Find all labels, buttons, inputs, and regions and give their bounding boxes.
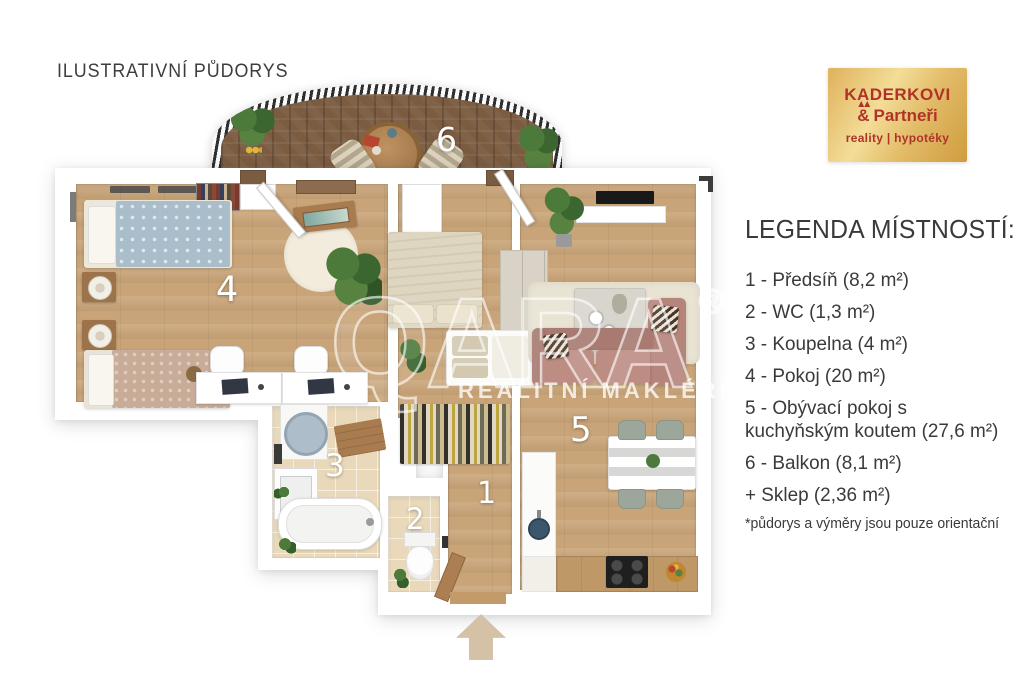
dining-chair xyxy=(618,420,646,440)
dining-chair xyxy=(656,489,684,509)
window-mark xyxy=(158,186,198,193)
plant-pot xyxy=(556,234,572,247)
dining-chair xyxy=(656,420,684,440)
room-number-bath: 3 xyxy=(325,448,345,484)
faucet xyxy=(537,510,541,518)
laptop xyxy=(308,378,335,395)
plant xyxy=(542,184,586,238)
mirror xyxy=(302,207,349,227)
room-number-balcony: 6 xyxy=(436,120,457,159)
plant xyxy=(400,336,426,374)
kitchen-counter xyxy=(522,452,556,560)
faucet xyxy=(366,518,374,526)
window-mark xyxy=(70,192,76,222)
cushion xyxy=(452,358,488,378)
mouse xyxy=(344,384,350,390)
room-number-hall: 1 xyxy=(477,476,496,511)
cushion xyxy=(452,336,488,356)
pillow xyxy=(88,354,114,406)
window-mark xyxy=(110,186,150,193)
sofa-pillow xyxy=(651,305,680,334)
wall-corner-mark xyxy=(708,176,713,192)
decor-bowl xyxy=(588,310,604,326)
table-plant xyxy=(646,454,660,468)
room-number-living: 5 xyxy=(570,410,592,450)
room-number-wc: 2 xyxy=(406,502,424,536)
dining-chair xyxy=(618,489,646,509)
tv xyxy=(596,191,654,204)
striped-runner-rug xyxy=(400,404,510,464)
kitchen-counter xyxy=(522,556,560,592)
plant xyxy=(326,244,382,306)
bathtub-basin xyxy=(286,505,374,543)
plant xyxy=(274,484,294,500)
mouse xyxy=(258,384,264,390)
lamp xyxy=(88,324,112,348)
duvet xyxy=(116,201,230,267)
pillow xyxy=(88,206,116,264)
kitchen-sink xyxy=(528,518,550,540)
plant xyxy=(392,566,410,588)
stove-cooktop xyxy=(606,556,648,588)
toilet-paper-holder xyxy=(442,536,448,548)
cushion xyxy=(492,336,528,378)
sofa-seat xyxy=(596,350,650,384)
laptop xyxy=(222,378,249,395)
media-console xyxy=(576,206,666,223)
page: ILUSTRATIVNÍ PŮDORYS KADERKOVI &Partneři… xyxy=(0,0,1024,682)
pillow xyxy=(436,304,478,324)
toilet-bowl xyxy=(406,546,434,580)
cabinet xyxy=(402,184,442,234)
room-number-room: 4 xyxy=(216,270,238,310)
lamp xyxy=(88,276,112,300)
table-runner xyxy=(609,467,695,476)
shower-fixture xyxy=(274,444,282,464)
washing-machine-lid xyxy=(284,412,328,456)
sofa-pillow xyxy=(542,332,569,359)
fruit-bowl xyxy=(666,562,686,582)
entry-threshold xyxy=(450,592,506,604)
plant xyxy=(274,536,296,554)
vase xyxy=(612,294,627,314)
wall-artwork xyxy=(296,180,356,194)
pillow xyxy=(392,304,434,324)
